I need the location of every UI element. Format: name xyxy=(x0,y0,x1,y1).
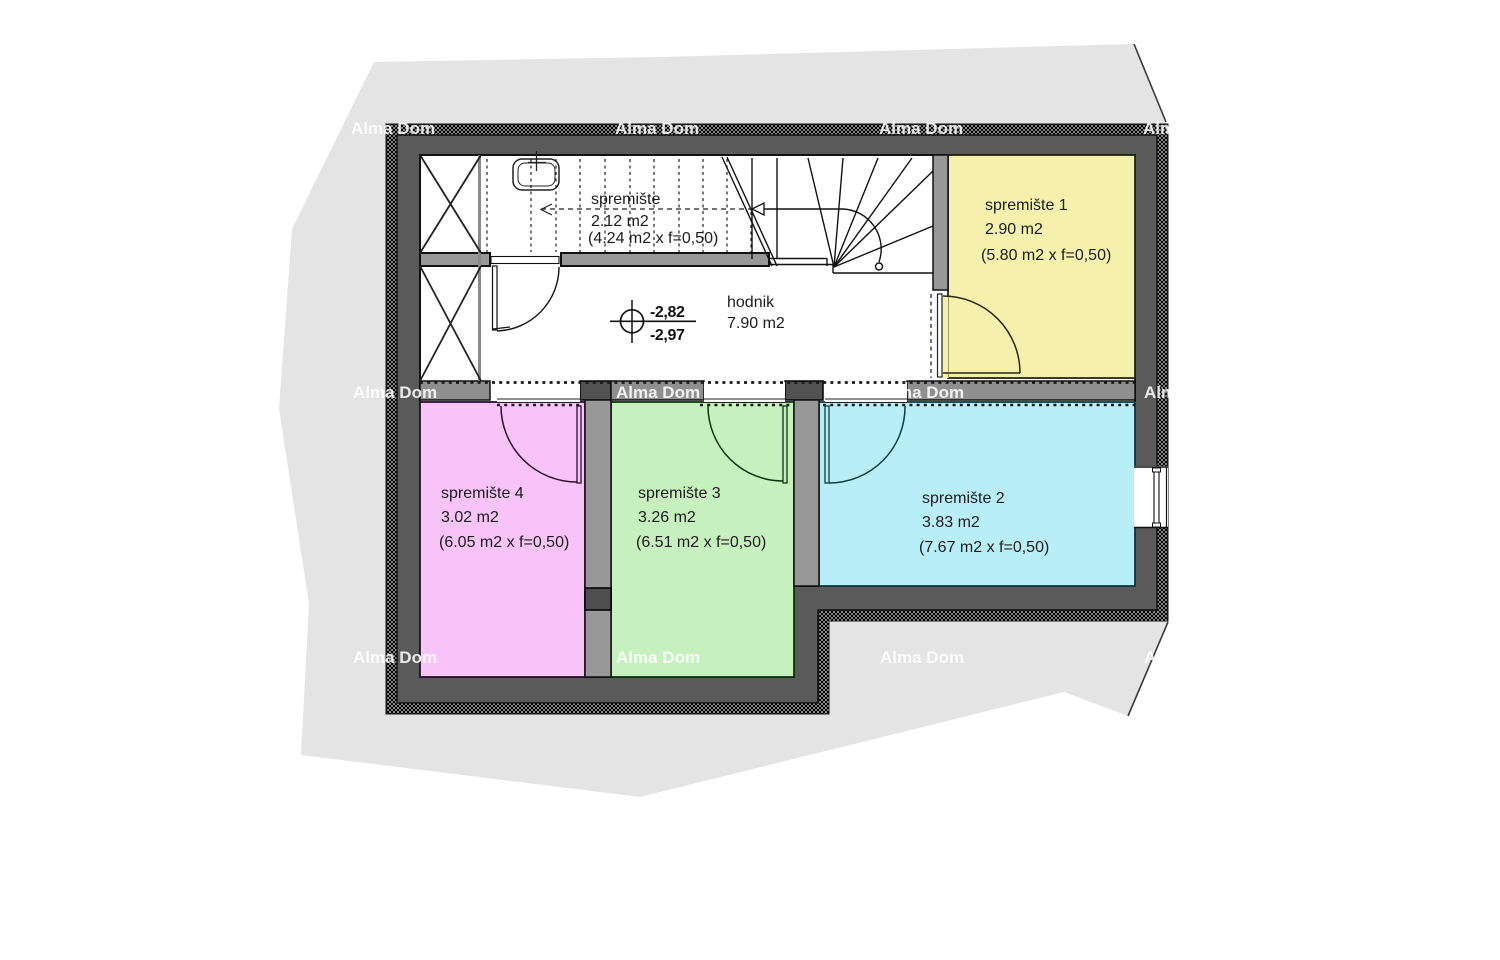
svg-text:(6.51 m2 x f=0,50): (6.51 m2 x f=0,50) xyxy=(636,534,766,551)
svg-text:-2,97: -2,97 xyxy=(650,327,685,344)
svg-text:spremište 2: spremište 2 xyxy=(922,490,1005,507)
svg-text:Alma Dom: Alma Dom xyxy=(879,119,963,138)
svg-text:spremište 4: spremište 4 xyxy=(441,485,524,502)
svg-text:(4.24 m2 x f=0,50): (4.24 m2 x f=0,50) xyxy=(588,230,718,247)
svg-text:7.90 m2: 7.90 m2 xyxy=(727,315,785,332)
svg-text:2.12 m2: 2.12 m2 xyxy=(591,213,649,230)
svg-text:-2,82: -2,82 xyxy=(650,304,685,321)
svg-text:Alma Dom: Alma Dom xyxy=(353,648,437,667)
svg-text:Alma Dom: Alma Dom xyxy=(1144,383,1228,402)
svg-text:(7.67 m2 x f=0,50): (7.67 m2 x f=0,50) xyxy=(919,539,1049,556)
svg-text:(5.80 m2 x f=0,50): (5.80 m2 x f=0,50) xyxy=(981,247,1111,264)
svg-text:Alma Dom: Alma Dom xyxy=(880,383,964,402)
svg-text:Alma Dom: Alma Dom xyxy=(1143,119,1227,138)
svg-text:spremište 3: spremište 3 xyxy=(638,485,721,502)
svg-text:Alma Dom: Alma Dom xyxy=(615,119,699,138)
svg-text:3.02 m2: 3.02 m2 xyxy=(441,509,499,526)
svg-text:spremište: spremište xyxy=(591,191,660,208)
svg-text:Alma Dom: Alma Dom xyxy=(880,648,964,667)
svg-text:Alma Dom: Alma Dom xyxy=(616,648,700,667)
svg-text:3.83 m2: 3.83 m2 xyxy=(922,514,980,531)
svg-text:2.90 m2: 2.90 m2 xyxy=(985,221,1043,238)
svg-text:(6.05 m2 x f=0,50): (6.05 m2 x f=0,50) xyxy=(439,534,569,551)
svg-text:spremište 1: spremište 1 xyxy=(985,197,1068,214)
svg-text:hodnik: hodnik xyxy=(727,294,775,311)
svg-text:3.26 m2: 3.26 m2 xyxy=(638,509,696,526)
svg-text:Alma Dom: Alma Dom xyxy=(616,383,700,402)
svg-text:Alma Dom: Alma Dom xyxy=(1144,648,1228,667)
svg-text:Alma Dom: Alma Dom xyxy=(351,119,435,138)
svg-text:Alma Dom: Alma Dom xyxy=(353,383,437,402)
